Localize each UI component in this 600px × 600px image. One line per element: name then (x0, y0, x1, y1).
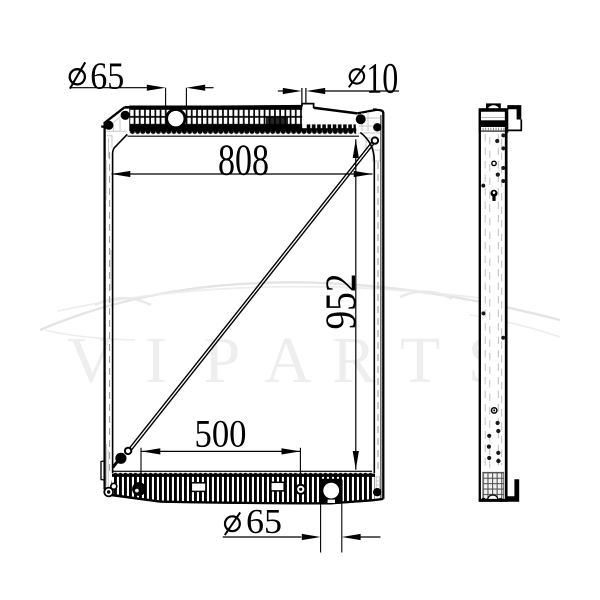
svg-text:808: 808 (218, 136, 269, 185)
svg-text:952: 952 (318, 274, 365, 330)
svg-text:I: I (145, 324, 167, 397)
svg-text:V: V (67, 324, 115, 397)
svg-text:T: T (400, 324, 440, 397)
svg-text:10: 10 (366, 56, 398, 103)
svg-text:65: 65 (246, 502, 282, 541)
svg-text:65: 65 (90, 55, 124, 97)
svg-text:R: R (332, 324, 376, 397)
svg-text:500: 500 (195, 411, 247, 455)
svg-text:A: A (264, 324, 312, 397)
